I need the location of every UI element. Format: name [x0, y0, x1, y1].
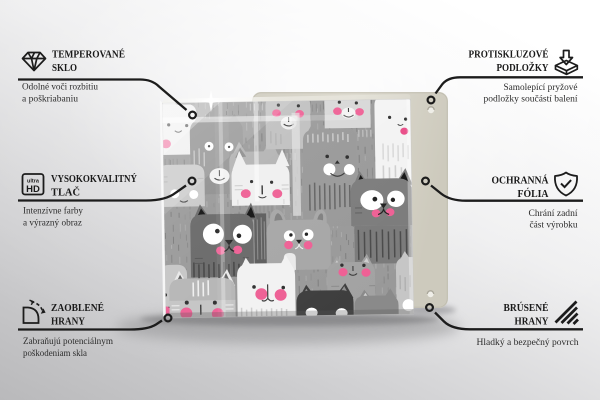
svg-text:podložky součástí balení: podložky součástí balení [484, 93, 578, 104]
svg-text:Intenzívne farby: Intenzívne farby [23, 206, 83, 217]
svg-text:a poškriabaniu: a poškriabaniu [22, 94, 78, 105]
svg-text:a výrazný obraz: a výrazný obraz [23, 218, 83, 229]
svg-text:Chrání zadní: Chrání zadní [529, 208, 578, 219]
svg-text:poškodeniam skla: poškodeniam skla [23, 348, 88, 359]
svg-text:OCHRANNÁ: OCHRANNÁ [492, 175, 549, 187]
svg-text:HRANY: HRANY [51, 317, 85, 328]
svg-text:HD: HD [26, 184, 40, 195]
svg-text:FÓLIA: FÓLIA [518, 188, 549, 200]
svg-text:VYSOKOKVALITNÝ: VYSOKOKVALITNÝ [51, 173, 137, 185]
svg-text:BRÚSENÉ: BRÚSENÉ [504, 302, 549, 314]
svg-text:Zabraňujú potenciálnym: Zabraňujú potenciálnym [23, 336, 113, 347]
svg-text:část výrobku: část výrobku [530, 220, 578, 231]
svg-text:PODLOŽKY: PODLOŽKY [497, 62, 549, 74]
svg-text:Odolné voči rozbitiu: Odolné voči rozbitiu [22, 82, 98, 93]
svg-text:PROTISKLUZOVÉ: PROTISKLUZOVÉ [469, 49, 549, 61]
svg-text:TLAČ: TLAČ [51, 186, 80, 199]
svg-text:HRANY: HRANY [515, 317, 549, 328]
svg-text:SKLO: SKLO [52, 63, 77, 74]
svg-text:Samolepící pryžové: Samolepící pryžové [504, 82, 579, 93]
svg-text:Hladký a bezpečný povrch: Hladký a bezpečný povrch [477, 337, 579, 348]
svg-text:TEMPEROVANÉ: TEMPEROVANÉ [52, 49, 125, 61]
svg-text:ZAOBLENÉ: ZAOBLENÉ [51, 302, 104, 314]
